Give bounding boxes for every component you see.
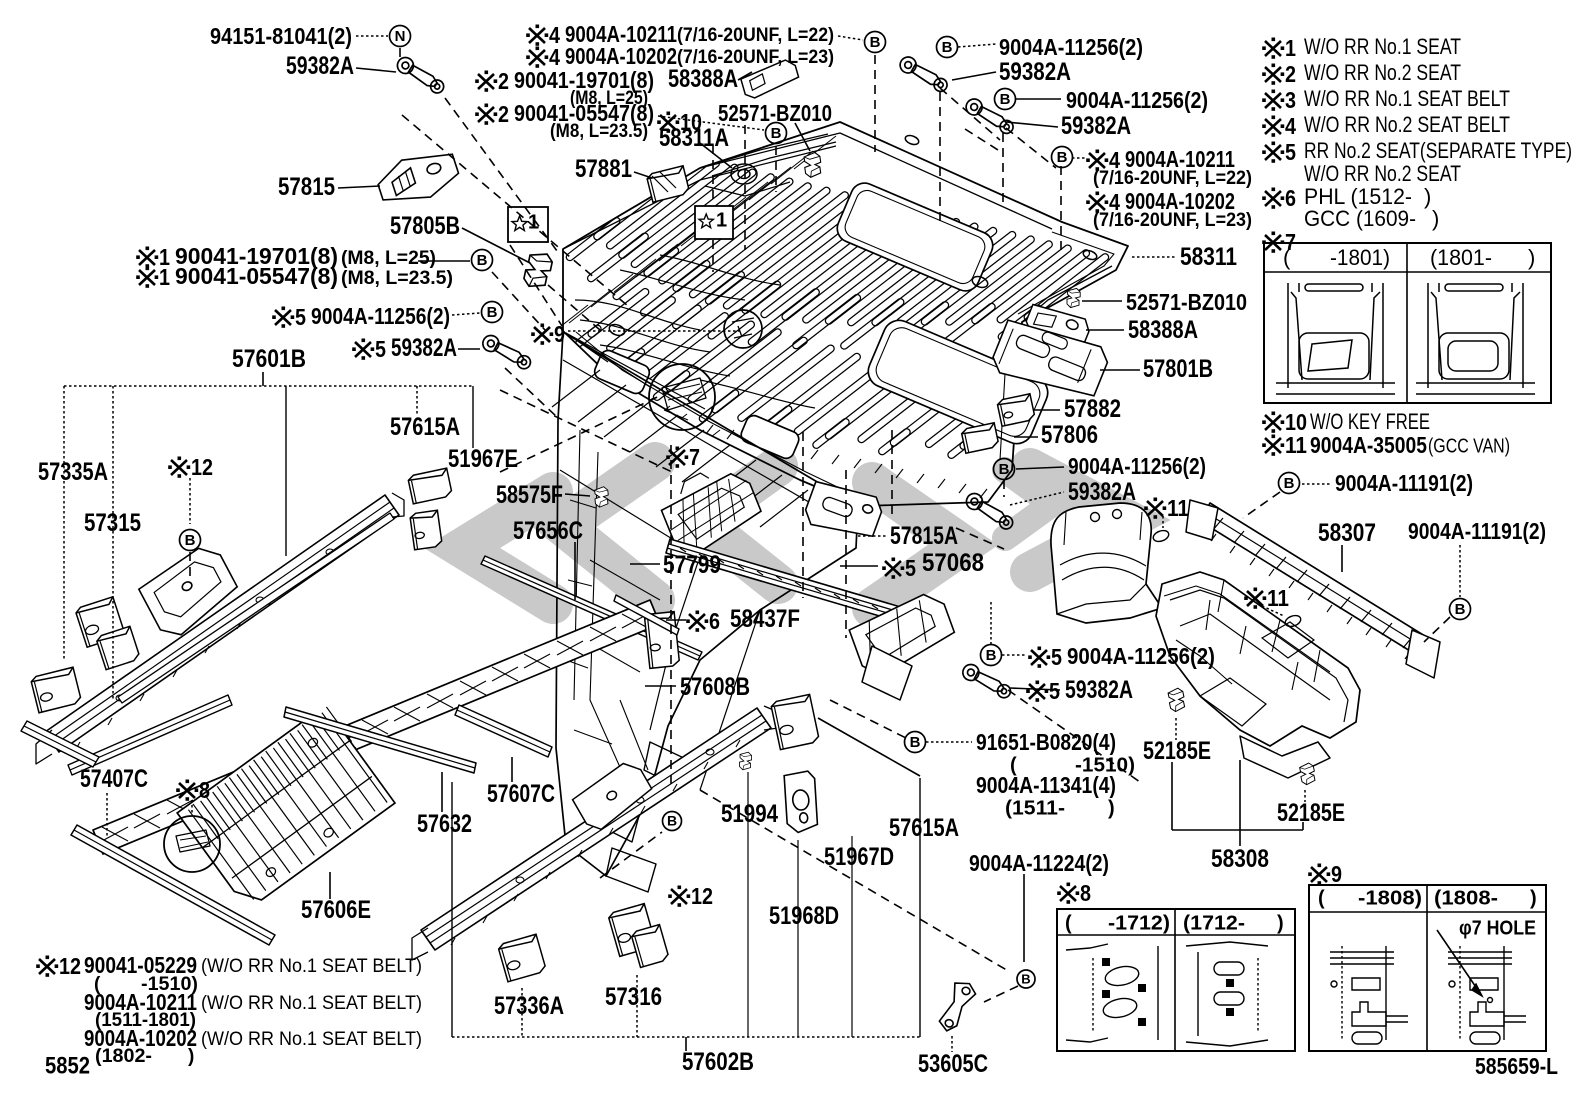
svg-text:5: 5 (375, 336, 386, 362)
svg-text:7: 7 (689, 444, 700, 470)
svg-text:(W/O RR No.1 SEAT BELT): (W/O RR No.1 SEAT BELT) (201, 956, 422, 977)
svg-text:12: 12 (691, 883, 713, 909)
svg-text:(: ( (1318, 888, 1325, 910)
svg-text:58388A: 58388A (668, 65, 738, 93)
svg-text:φ7 HOLE: φ7 HOLE (1459, 918, 1536, 940)
svg-text:9004A-11341(4): 9004A-11341(4) (976, 772, 1116, 798)
svg-text:8: 8 (199, 777, 210, 803)
svg-text:58311: 58311 (1180, 243, 1237, 271)
svg-text:5852: 5852 (45, 1053, 90, 1080)
svg-text:57601B: 57601B (232, 345, 306, 373)
svg-text:(W/O RR No.1 SEAT BELT): (W/O RR No.1 SEAT BELT) (201, 993, 422, 1014)
svg-text:57608B: 57608B (680, 673, 750, 701)
svg-text:): ) (1277, 913, 1284, 935)
svg-text:52571-BZ010: 52571-BZ010 (718, 100, 832, 126)
svg-text:57632: 57632 (417, 810, 472, 838)
svg-text:59382A: 59382A (1068, 478, 1136, 506)
svg-text:8: 8 (1080, 880, 1091, 906)
svg-text:6: 6 (1285, 185, 1296, 211)
svg-text:57335A: 57335A (38, 458, 108, 486)
svg-text:RR No.2 SEAT(SEPARATE TYPE): RR No.2 SEAT(SEPARATE TYPE) (1304, 138, 1572, 163)
svg-text:5: 5 (1051, 644, 1062, 670)
svg-text:W/O RR No.1 SEAT BELT: W/O RR No.1 SEAT BELT (1304, 86, 1510, 111)
svg-text:2: 2 (498, 101, 509, 127)
svg-text:(W/O RR No.1 SEAT BELT): (W/O RR No.1 SEAT BELT) (201, 1029, 422, 1050)
svg-text:57606E: 57606E (301, 896, 371, 924)
svg-text:9004A-11256(2): 9004A-11256(2) (1066, 87, 1208, 113)
svg-text:(M8, L=23.5): (M8, L=23.5) (341, 268, 453, 289)
svg-text:): ) (188, 1046, 194, 1067)
svg-text:57815A: 57815A (890, 522, 958, 550)
svg-text:58307: 58307 (1318, 519, 1376, 547)
svg-text:-1808): -1808) (1358, 888, 1422, 910)
svg-text:90041-05547(8): 90041-05547(8) (175, 263, 338, 289)
svg-text:B: B (185, 532, 196, 549)
svg-text:(1511-: (1511- (1005, 798, 1065, 820)
svg-text:(1712-: (1712- (1183, 913, 1245, 935)
svg-text:B: B (986, 647, 997, 664)
svg-text:91651-B0820(4): 91651-B0820(4) (976, 729, 1116, 755)
svg-text:3: 3 (1285, 87, 1296, 113)
svg-text:12: 12 (191, 454, 213, 480)
svg-text:52185E: 52185E (1143, 737, 1211, 765)
svg-text:51968D: 51968D (769, 902, 839, 930)
svg-text:59382A: 59382A (1065, 676, 1133, 704)
svg-text:57336A: 57336A (494, 992, 564, 1020)
svg-text:57806: 57806 (1041, 421, 1098, 449)
svg-text:59382A: 59382A (391, 334, 457, 362)
svg-text:(1801-: (1801- (1430, 245, 1492, 270)
svg-text:9004A-11191(2): 9004A-11191(2) (1335, 470, 1473, 496)
svg-text:57607C: 57607C (487, 780, 555, 808)
svg-text:58388A: 58388A (1128, 316, 1198, 344)
svg-text:58437F: 58437F (730, 605, 800, 633)
svg-text:11: 11 (1267, 585, 1289, 611)
svg-text:59382A: 59382A (1061, 112, 1131, 140)
svg-text:B: B (999, 461, 1010, 478)
svg-text:(1802-: (1802- (95, 1046, 152, 1067)
svg-text:9: 9 (554, 321, 565, 347)
svg-text:57881: 57881 (575, 155, 632, 183)
svg-text:): ) (1528, 245, 1535, 270)
svg-text:9004A-11224(2): 9004A-11224(2) (969, 850, 1109, 876)
svg-text:(GCC VAN): (GCC VAN) (1428, 436, 1510, 458)
svg-text:58575F: 58575F (496, 481, 563, 509)
svg-text:(7/16-20UNF, L=23): (7/16-20UNF, L=23) (1093, 210, 1252, 231)
svg-text:1: 1 (159, 264, 170, 290)
svg-text:58308: 58308 (1211, 845, 1269, 873)
svg-text:2: 2 (1285, 61, 1296, 87)
svg-text:59382A: 59382A (999, 58, 1071, 86)
svg-text:11: 11 (1285, 432, 1307, 458)
svg-text:57602B: 57602B (682, 1048, 754, 1076)
svg-text:W/O RR No.2 SEAT: W/O RR No.2 SEAT (1304, 60, 1461, 85)
svg-text:51967D: 51967D (824, 843, 894, 871)
svg-text:(1808-: (1808- (1434, 888, 1498, 910)
svg-text:5: 5 (295, 304, 306, 330)
svg-text:W/O RR No.2 SEAT: W/O RR No.2 SEAT (1304, 161, 1461, 186)
svg-text:59382A: 59382A (286, 52, 354, 80)
svg-text:9004A-35005: 9004A-35005 (1310, 432, 1427, 458)
svg-text:57656C: 57656C (513, 517, 583, 545)
svg-text:57407C: 57407C (80, 765, 148, 793)
svg-text:W/O RR No.1 SEAT: W/O RR No.1 SEAT (1304, 34, 1461, 59)
svg-text:B: B (1021, 971, 1030, 986)
svg-text:1: 1 (716, 210, 727, 232)
svg-text:9004A-11256(2): 9004A-11256(2) (311, 303, 450, 329)
svg-text:GCC (1609-: GCC (1609- (1304, 206, 1416, 231)
svg-text:B: B (487, 304, 498, 321)
svg-text:B: B (1000, 91, 1011, 108)
svg-text:57315: 57315 (84, 509, 141, 537)
svg-text:11: 11 (1167, 495, 1189, 521)
svg-text:2: 2 (498, 68, 509, 94)
svg-text:B: B (870, 34, 881, 51)
svg-text:1: 1 (1285, 35, 1296, 61)
svg-text:(: ( (1283, 245, 1291, 270)
svg-text:B: B (771, 125, 782, 142)
svg-text:57815: 57815 (278, 173, 335, 201)
svg-text:9004A-11256(2): 9004A-11256(2) (999, 34, 1143, 60)
svg-text:B: B (667, 813, 677, 829)
svg-text:9004A-11191(2): 9004A-11191(2) (1408, 518, 1546, 544)
svg-text:5: 5 (1285, 139, 1296, 165)
svg-text:51967E: 51967E (448, 445, 518, 473)
svg-text:57615A: 57615A (889, 814, 959, 842)
svg-text:-1801): -1801) (1330, 245, 1390, 270)
svg-text:W/O KEY FREE: W/O KEY FREE (1310, 409, 1430, 434)
svg-text:-1712): -1712) (1108, 913, 1170, 935)
svg-text:N: N (395, 28, 406, 45)
svg-text:94151-81041(2): 94151-81041(2) (210, 23, 352, 49)
svg-text:W/O RR No.2 SEAT BELT: W/O RR No.2 SEAT BELT (1304, 112, 1510, 137)
svg-text:52571-BZ010: 52571-BZ010 (1126, 289, 1247, 315)
svg-text:(M8, L=25): (M8, L=25) (341, 248, 436, 269)
svg-text:4: 4 (1285, 113, 1296, 139)
svg-text:57316: 57316 (605, 983, 662, 1011)
svg-text:57615A: 57615A (390, 413, 460, 441)
svg-text:57799: 57799 (663, 551, 721, 579)
svg-text:585659-L: 585659-L (1475, 1053, 1558, 1079)
svg-text:B: B (910, 734, 921, 751)
svg-text:): ) (1530, 888, 1537, 910)
svg-text:B: B (477, 252, 488, 269)
svg-text:B: B (1057, 149, 1068, 166)
svg-text:B: B (1284, 475, 1295, 492)
svg-text:57882: 57882 (1064, 395, 1121, 423)
svg-text:6: 6 (709, 608, 720, 634)
svg-text:(M8, L=23.5): (M8, L=23.5) (550, 121, 648, 142)
svg-text:51994: 51994 (721, 800, 778, 828)
svg-text:12: 12 (59, 953, 81, 979)
svg-text:(7/16-20UNF, L=22): (7/16-20UNF, L=22) (677, 25, 834, 46)
svg-text:57805B: 57805B (390, 212, 460, 240)
svg-text:57801B: 57801B (1143, 355, 1213, 383)
svg-text:): ) (1108, 798, 1115, 820)
svg-text:58311A: 58311A (659, 124, 729, 152)
svg-text:57068: 57068 (922, 549, 984, 577)
svg-text:9004A-10202: 9004A-10202 (565, 43, 677, 69)
svg-text:(: ( (1065, 913, 1072, 935)
svg-text:B: B (942, 39, 953, 56)
svg-text:53605C: 53605C (918, 1050, 988, 1078)
svg-text:52185E: 52185E (1277, 799, 1345, 827)
svg-text:9004A-11256(2): 9004A-11256(2) (1068, 453, 1206, 479)
svg-text:): ) (1424, 184, 1431, 209)
svg-text:9: 9 (1331, 861, 1342, 887)
svg-text:): ) (1432, 206, 1439, 231)
svg-text:9004A-11256(2): 9004A-11256(2) (1067, 643, 1215, 669)
svg-text:5: 5 (1049, 678, 1060, 704)
svg-text:B: B (1455, 601, 1466, 618)
svg-text:(7/16-20UNF, L=22): (7/16-20UNF, L=22) (1093, 168, 1252, 189)
svg-text:5: 5 (905, 555, 916, 581)
